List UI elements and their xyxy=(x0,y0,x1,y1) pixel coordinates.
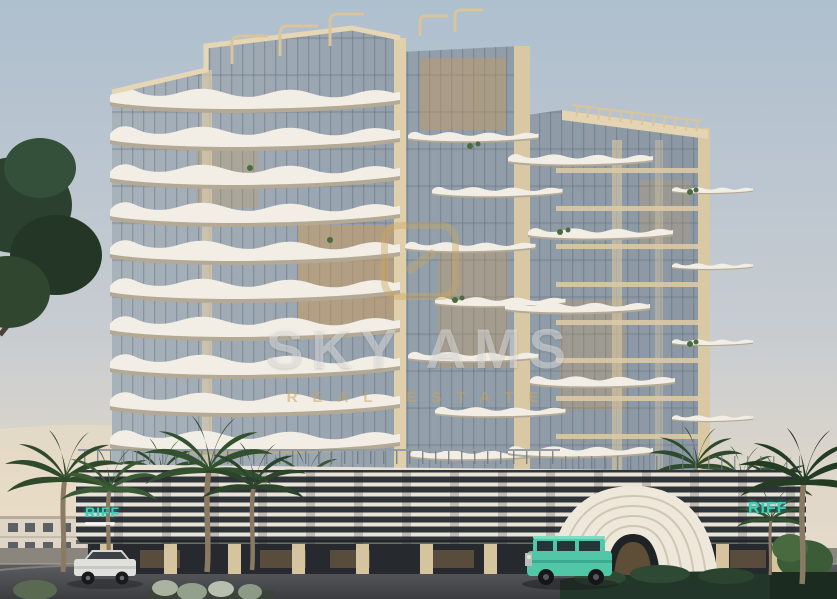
sign-riff-left: RIFF xyxy=(85,505,120,525)
architectural-render: RIFF RIFF SKY AMS REAL ESTATE xyxy=(0,0,837,599)
sign-left-subtext-bar xyxy=(85,522,115,525)
scene-art xyxy=(0,0,837,599)
sign-riff-right: RIFF xyxy=(748,501,788,517)
sign-riff-left-label: RIFF xyxy=(85,504,120,520)
green-van xyxy=(522,536,618,590)
sign-riff-right-label: RIFF xyxy=(748,500,788,517)
